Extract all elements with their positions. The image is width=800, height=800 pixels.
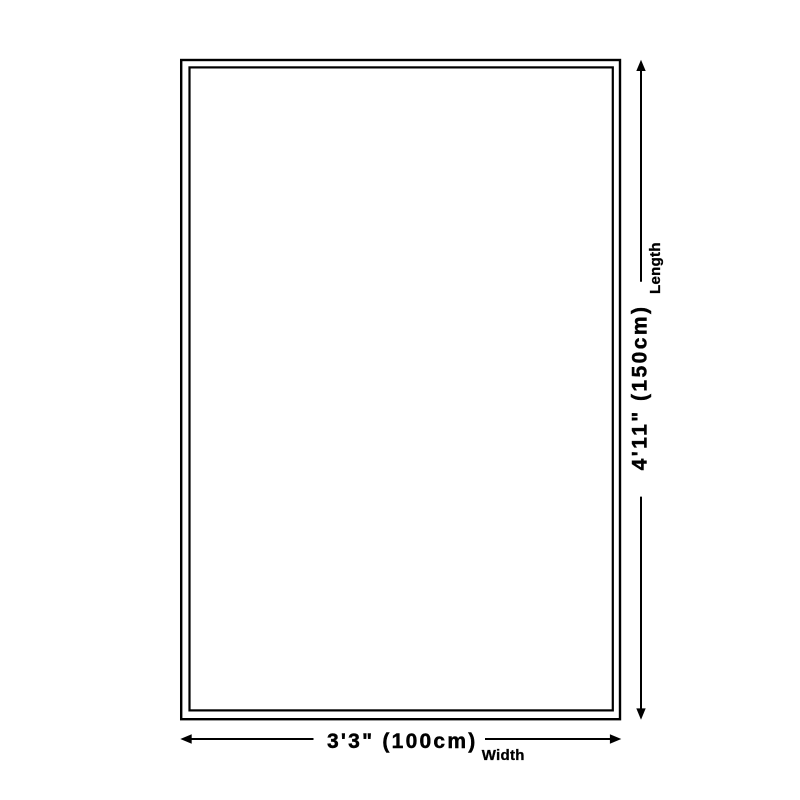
- svg-text:Width: Width: [482, 747, 525, 764]
- svg-text:3'3" (100cm): 3'3" (100cm): [327, 730, 478, 753]
- svg-text:4'11" (150cm): 4'11" (150cm): [629, 305, 652, 471]
- svg-text:Length: Length: [647, 242, 664, 294]
